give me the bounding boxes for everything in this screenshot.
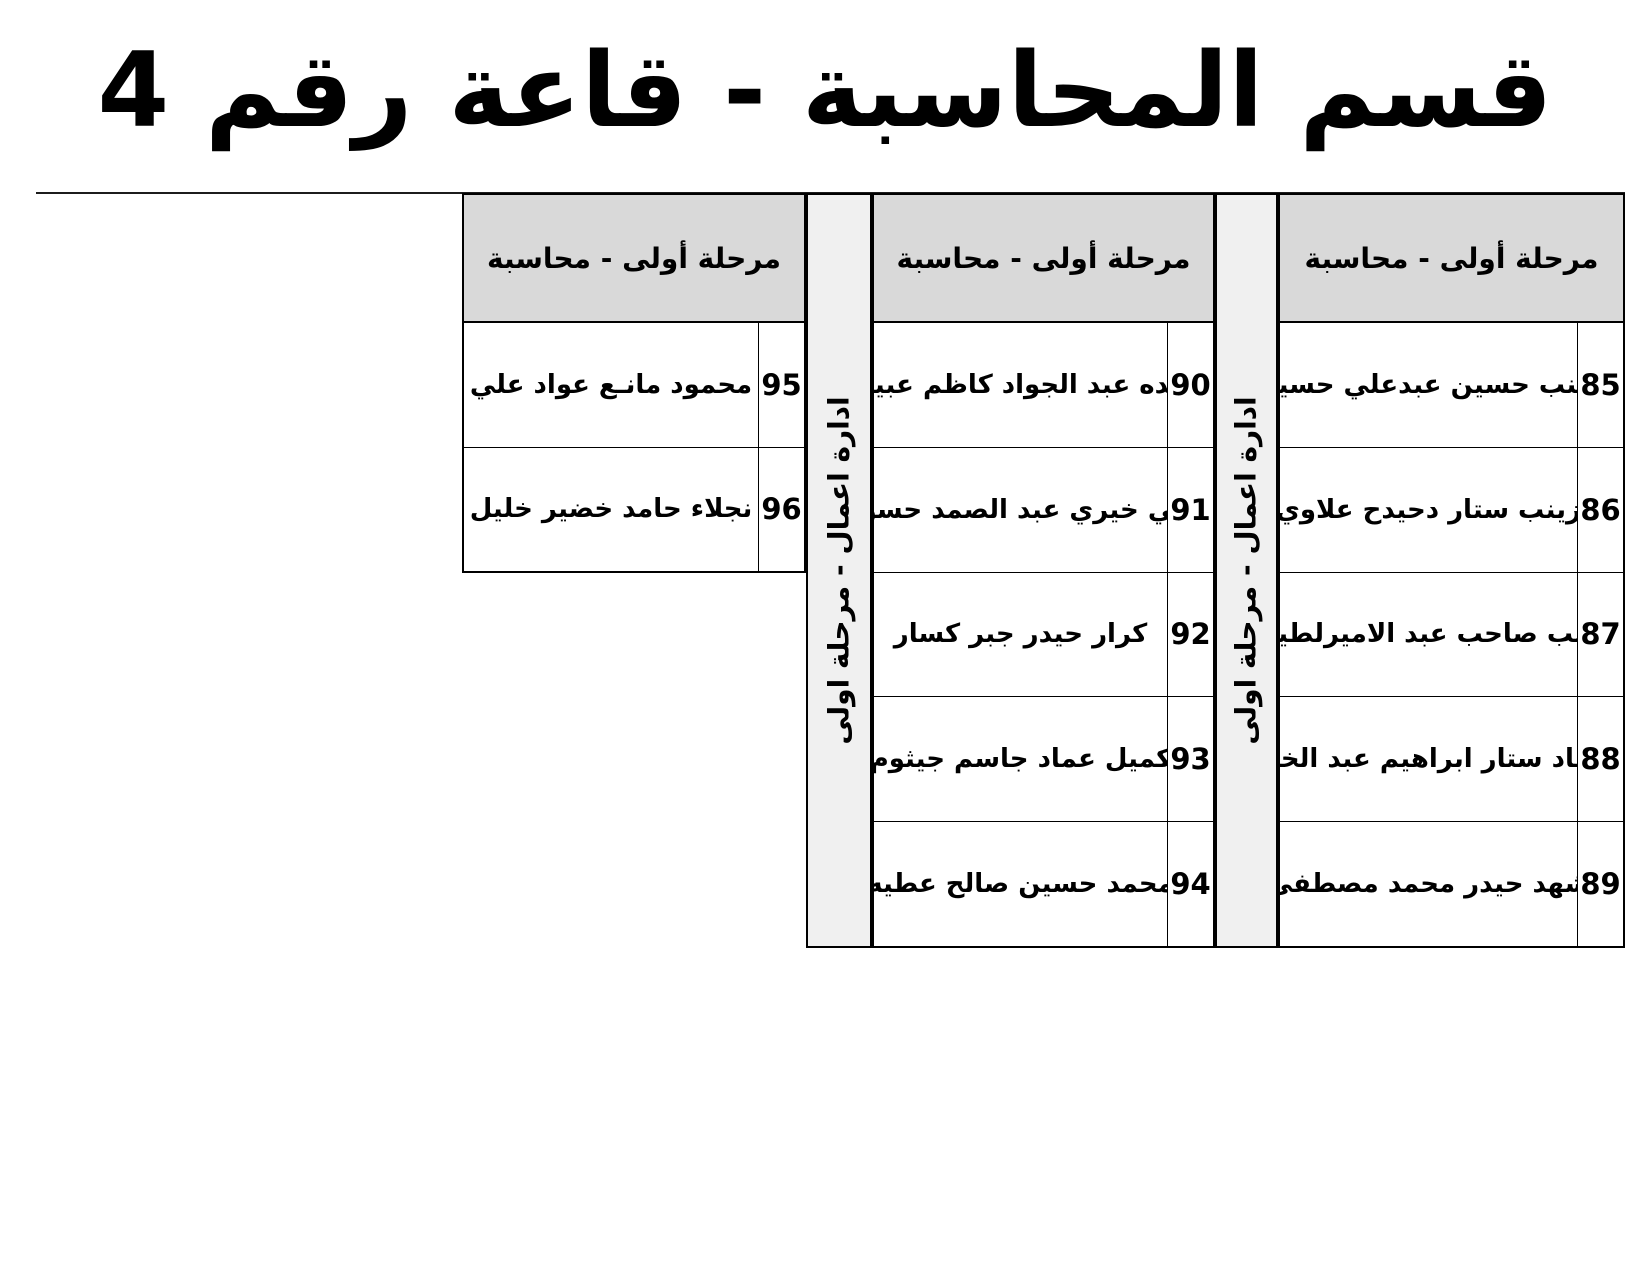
- student-name: كميل عماد جاسم جيثوم: [874, 697, 1167, 821]
- group-header: مرحلة أولى - محاسبة: [464, 195, 804, 323]
- group-rows: محمود مانـع عواد علي 95 نجلاء حامد خضير …: [464, 323, 804, 571]
- group-header: مرحلة أولى - محاسبة: [874, 195, 1213, 323]
- student-row: زينب ستار دحيدح علاوي 86: [1280, 447, 1623, 572]
- student-name: نجلاء حامد خضير خليل: [464, 448, 758, 572]
- table-group-seats-85-89: مرحلة أولى - محاسبة زينب حسين عبدعلي حسي…: [1278, 193, 1625, 948]
- student-row: زينب حسين عبدعلي حسين 85: [1280, 323, 1623, 447]
- student-row: شهد حيدر محمد مصطفى 89: [1280, 821, 1623, 946]
- student-row: نجلاء حامد خضير خليل 96: [464, 447, 804, 572]
- seating-chart-page: قسم المحاسبة - قاعة رقم 4 مرحلة أولى - م…: [0, 0, 1650, 1275]
- student-name: كرار حيدر جبر كسار: [874, 573, 1167, 697]
- student-row: زينب صاحب عبد الاميرلطيف 87: [1280, 572, 1623, 697]
- seat-number: 87: [1577, 573, 1623, 697]
- section-label: ادارة اعمال - مرحلة اولى: [823, 396, 856, 744]
- student-name: شهد حيدر محمد مصطفى: [1280, 822, 1577, 946]
- group-rows: عائده عبد الجواد كاظم عبيـان 90 علي خيري…: [874, 323, 1213, 946]
- section-label: ادارة اعمال - مرحلة اولى: [1230, 396, 1263, 744]
- seat-number: 90: [1167, 323, 1213, 447]
- section-label-strip-right: ادارة اعمال - مرحلة اولى: [1215, 193, 1278, 948]
- student-row: سجاد ستار ابراهيم عبد الخالق 88: [1280, 696, 1623, 821]
- seat-number: 85: [1577, 323, 1623, 447]
- seat-number: 93: [1167, 697, 1213, 821]
- student-name: زينب ستار دحيدح علاوي: [1280, 448, 1577, 572]
- seat-number: 92: [1167, 573, 1213, 697]
- student-row: محمود مانـع عواد علي 95: [464, 323, 804, 447]
- group-rows: زينب حسين عبدعلي حسين 85 زينب ستار دحيدح…: [1280, 323, 1623, 946]
- student-name: محمد حسين صالح عطيه: [874, 822, 1167, 946]
- seat-number: 89: [1577, 822, 1623, 946]
- student-row: محمد حسين صالح عطيه 94: [874, 821, 1213, 946]
- seat-number: 91: [1167, 448, 1213, 572]
- student-row: كرار حيدر جبر كسار 92: [874, 572, 1213, 697]
- table-group-seats-90-94: مرحلة أولى - محاسبة عائده عبد الجواد كاظ…: [872, 193, 1215, 948]
- seat-number: 95: [758, 323, 804, 447]
- seat-number: 96: [758, 448, 804, 572]
- student-name: عائده عبد الجواد كاظم عبيـان: [874, 323, 1167, 447]
- seat-number: 94: [1167, 822, 1213, 946]
- student-row: علي خيري عبد الصمد حسون 91: [874, 447, 1213, 572]
- seat-number: 86: [1577, 448, 1623, 572]
- student-name: محمود مانـع عواد علي: [464, 323, 758, 447]
- student-name: علي خيري عبد الصمد حسون: [874, 448, 1167, 572]
- student-name: زينب صاحب عبد الاميرلطيف: [1280, 573, 1577, 697]
- student-name: سجاد ستار ابراهيم عبد الخالق: [1280, 697, 1577, 821]
- student-name: زينب حسين عبدعلي حسين: [1280, 323, 1577, 447]
- student-row: عائده عبد الجواد كاظم عبيـان 90: [874, 323, 1213, 447]
- page-title: قسم المحاسبة - قاعة رقم 4: [0, 2, 1650, 180]
- seat-number: 88: [1577, 697, 1623, 821]
- group-header: مرحلة أولى - محاسبة: [1280, 195, 1623, 323]
- table-group-seats-95-96: مرحلة أولى - محاسبة محمود مانـع عواد علي…: [462, 193, 806, 573]
- section-label-strip-left: ادارة اعمال - مرحلة اولى: [806, 193, 872, 948]
- student-row: كميل عماد جاسم جيثوم 93: [874, 696, 1213, 821]
